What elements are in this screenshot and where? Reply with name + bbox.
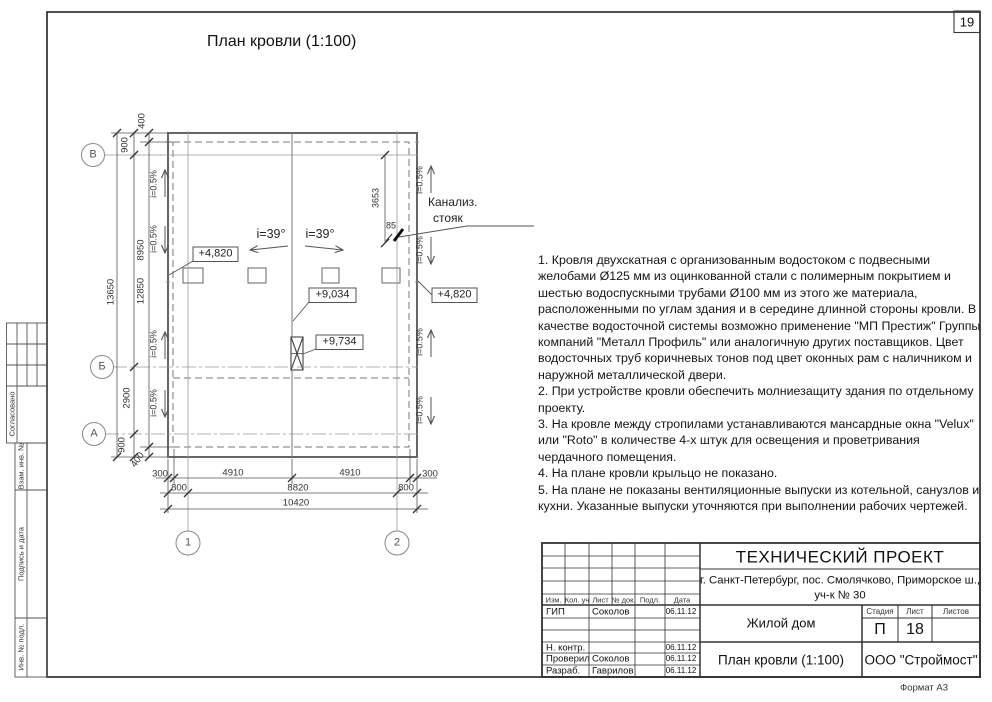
drawing-title: План кровли (1:100) [207,34,356,50]
eaves-slope-label: i=0.5% [416,328,425,356]
dimension-ticks [113,129,421,513]
stamp-col-doc: № док. [611,596,635,604]
margin-attribute-blocks [7,323,48,677]
stamp-project-type: ТЕХНИЧЕСКИЙ ПРОЕКТ [736,549,945,566]
note-item: 2. При устройстве кровли обеспечить молн… [538,383,983,416]
stamp-row-role: Н. контр. [546,643,585,653]
stamp-sheet-label: Лист [906,608,923,616]
dim-b3-total: 10420 [283,498,309,508]
dim-b2-right: 800 [398,483,414,493]
elevation-eaves-right: +4,820 [438,290,472,301]
axis-label-b: Б [98,362,105,373]
general-notes: 1. Кровля двухскатная с организованным в… [538,252,983,515]
eaves-slope-label: i=0.5% [150,389,159,417]
eaves-slope-label: i=0.5% [150,330,159,358]
dim-A-to-edge: 900 [117,437,127,453]
stamp-stage-value: П [874,622,886,638]
stamp-address-line2: уч-к № 30 [814,590,865,601]
roof-slope-right-label: i=39° [306,228,335,241]
slope-arrows [165,166,431,424]
axis-label-1: 1 [185,538,191,549]
stamp-row-role: Разраб. [546,666,580,676]
stamp-row-name: Гаврилов [592,666,634,676]
eaves-slope-label: i=0.5% [150,225,159,253]
stamp-address-line1: г. Санкт-Петербург, пос. Смолячково, При… [700,575,980,586]
dim-riser-offset: 85 [386,222,396,231]
stamp-row-date: 06.11.12 [666,608,697,616]
dim-wall-to-wall: 12850 [136,278,146,304]
sheet-number: 19 [960,15,974,28]
stamp-col-podp: Подл. [640,596,660,604]
eaves-slope-label: i=0.5% [416,396,425,424]
stamp-row-name: Соколов [592,654,629,664]
note-item: 4. На плане кровли крыльцо не показано. [538,465,983,481]
dim-b1-right: 300 [422,469,438,479]
sewer-riser-label-line1: Канализ. [428,196,478,208]
stamp-row-name: Соколов [592,607,629,617]
stamp-row-date: 06.11.12 [666,655,697,663]
dim-b1-left: 300 [152,469,168,479]
eaves-slope-label: i=0.5% [416,166,425,194]
stamp-col-data: Дата [674,596,691,604]
stamp-company: ООО "Строймост" [864,653,977,667]
dim-B-to-B2: 8950 [136,239,146,260]
elevation-eaves-left: +4,820 [199,249,233,260]
stamp-col-list: Лист [592,596,608,604]
stamp-sheet-number: 18 [906,622,924,638]
stamp-row-date: 06.11.12 [666,644,697,652]
chimney-symbol [291,337,303,370]
stamp-row-date: 06.11.12 [666,667,697,675]
margin-label-inv: Инв. № подл. [17,624,25,671]
drawing-sheet: 19 План кровли (1:100) В Б А 1 2 i=39° i… [0,0,992,702]
note-item: 3. На кровле между стропилами устанавлив… [538,416,983,465]
dim-b2-mid: 8820 [287,483,308,493]
elevation-ridge: +9,034 [316,290,350,301]
stamp-row-role: ГИП [546,607,565,617]
dim-b1-mid-right: 4910 [339,468,360,478]
dim-b1-mid-left: 4910 [222,468,243,478]
roof-slope-left-label: i=39° [257,228,286,241]
axis-label-a: А [90,429,97,440]
stamp-col-izm: Изм. [545,596,561,604]
dim-b2-left: 800 [171,483,187,493]
elevation-chimney: +9,734 [323,337,357,348]
margin-label-vzam: Взам. инв. № [17,443,25,489]
stamp-col-kol: Кол. уч [565,596,590,604]
roof-outline [167,133,419,457]
margin-label-soglasovano: Согласовано [8,391,16,436]
axis-label-v: В [89,150,96,161]
dim-edge-to-B: 900 [120,137,130,153]
note-item: 5. На плане не показаны вентиляционные в… [538,482,983,515]
stamp-sheet-title: План кровли (1:100) [718,653,844,667]
eaves-slope-label: i=0.5% [150,170,159,198]
dim-left-total: 13650 [106,279,116,305]
margin-label-podpis: Подпись и дата [17,527,25,581]
eaves-slope-label: i=0.5% [416,236,425,264]
sewer-riser-label-line2: стояк [433,212,463,224]
format-label: Формат А3 [900,683,948,693]
axis-label-2: 2 [394,538,400,549]
dim-riser-vertical: 3653 [372,188,381,208]
stamp-stage-label: Стадия [866,608,893,616]
stamp-object-name: Жилой дом [747,617,816,630]
dim-B2-to-A: 2900 [122,387,132,408]
stamp-sheets-label: Листов [943,608,969,616]
stamp-row-role: Проверил [546,654,590,664]
dim-overhang-top: 400 [137,113,147,129]
note-item: 1. Кровля двухскатная с организованным в… [538,252,983,383]
